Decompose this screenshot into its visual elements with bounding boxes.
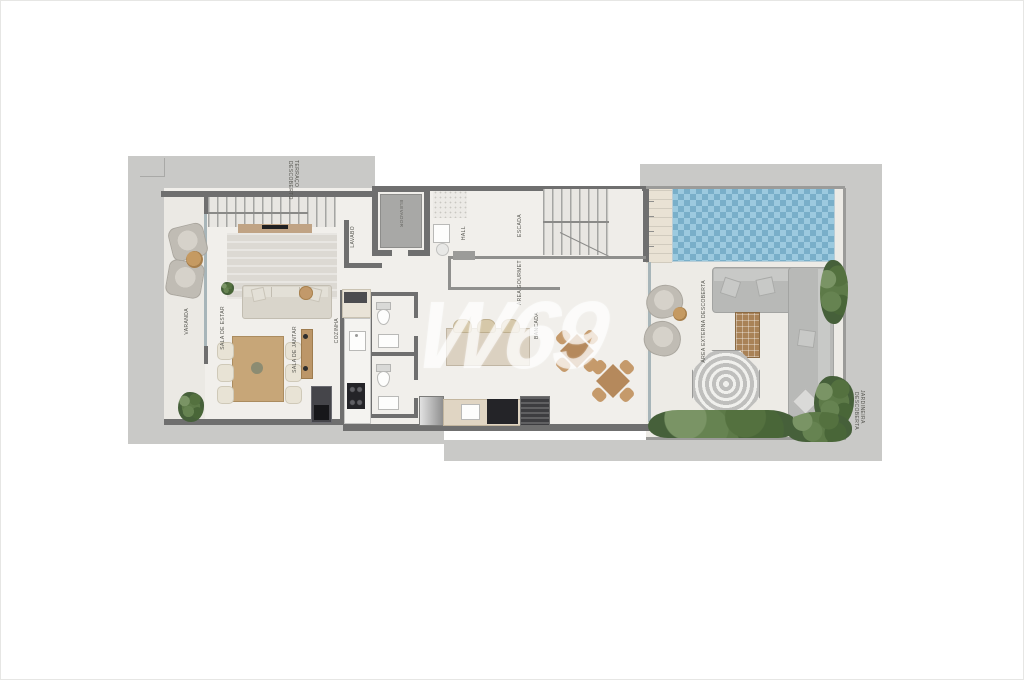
gourmet-cooktop [487,399,518,424]
outdoor-pillow [797,329,816,348]
wall-indoor-outdoor [643,186,649,262]
plant-pot-bottom-left [178,392,204,422]
stair-main-rail [543,221,609,223]
hedge-bottom-left [648,410,798,438]
balcony-side-table [186,251,203,268]
outdoor-side-table [673,307,687,321]
label-terrace-line1: TERRAÇO [293,160,299,187]
elevator-wall-right [424,186,430,256]
watermark-logo: W69 [410,288,612,384]
dining-chair [217,364,234,382]
label-living: SALA DE ESTAR [220,306,226,350]
sofa-pillow-left [251,287,266,302]
planter-right-top [820,260,848,324]
label-outdoor-area: ÁREA EXTERNA DESCOBERTA [701,280,707,363]
label-balcony: VARANDA [184,308,190,335]
outdoor-pillow [755,276,775,296]
balcony-glass-stub-bottom [204,346,208,364]
label-lavabo: LAVABO [350,226,356,248]
lavabo-wall-bottom [344,263,382,268]
stair-living-rail [208,212,308,214]
bath-vanity [378,396,399,410]
dining-chair [285,386,302,404]
swimming-pool [672,188,835,262]
floor-plan-canvas: TERRAÇO DESCOBERTO ELEVADOR LAVABO HALL … [0,0,1024,680]
plant-beside-sofa [221,282,234,295]
hedge-bottom-right [786,412,852,442]
tv [262,225,288,229]
fridge [419,396,444,426]
lavabo-wall-left [344,220,349,268]
bath-vanity [378,334,399,348]
terrace-band-left [128,156,165,444]
label-elevator: ELEVADOR [398,200,404,227]
sideboard-lamp [303,334,308,339]
gourmet-sink [461,404,480,420]
label-kitchen: COZINHA [334,318,340,343]
bath-wall-right-a [414,292,418,318]
label-planter-line1: JARDINEIRA [859,390,865,424]
bath-wall-bottom [368,414,418,418]
label-terrace-line2: DESCOBERTO [287,161,293,200]
parapet-outdoor-top [646,186,845,189]
stair-landing [609,189,642,255]
kitchen-appliance [344,292,367,303]
terrace-notch [140,158,165,177]
elevator-wall-top [372,186,430,192]
dining-centerpiece [251,362,263,374]
label-stairs: ESCADA [517,214,523,237]
bath-wall-right-c [414,398,418,418]
sideboard-lamp [303,366,308,371]
elevator-wall-left [372,186,378,256]
bar-appliance [314,405,329,420]
elevator-wall-bottom-right [408,250,430,256]
side-table-round [299,286,313,300]
kitchen-faucet [355,334,358,337]
hall-stool [436,243,449,256]
terrace-band-top-left [128,156,375,192]
dining-chair [217,386,234,404]
elevator-wall-bottom-left [372,250,392,256]
bath-wall-mid [368,352,418,356]
service-nook-floor [433,190,467,218]
barbecue-grill [520,396,550,426]
hall-cabinet [433,224,450,243]
gallery-track-top [448,256,646,259]
hall-bench [453,251,475,260]
bath-wall-top [368,292,418,296]
label-planter-line2: DESCOBERTA [853,392,859,430]
kitchen-cooktop [347,383,365,409]
label-dining: SALA DE JANTAR [292,326,298,373]
label-hall: HALL [461,226,467,240]
terrace-band-bottom-right [444,440,882,461]
